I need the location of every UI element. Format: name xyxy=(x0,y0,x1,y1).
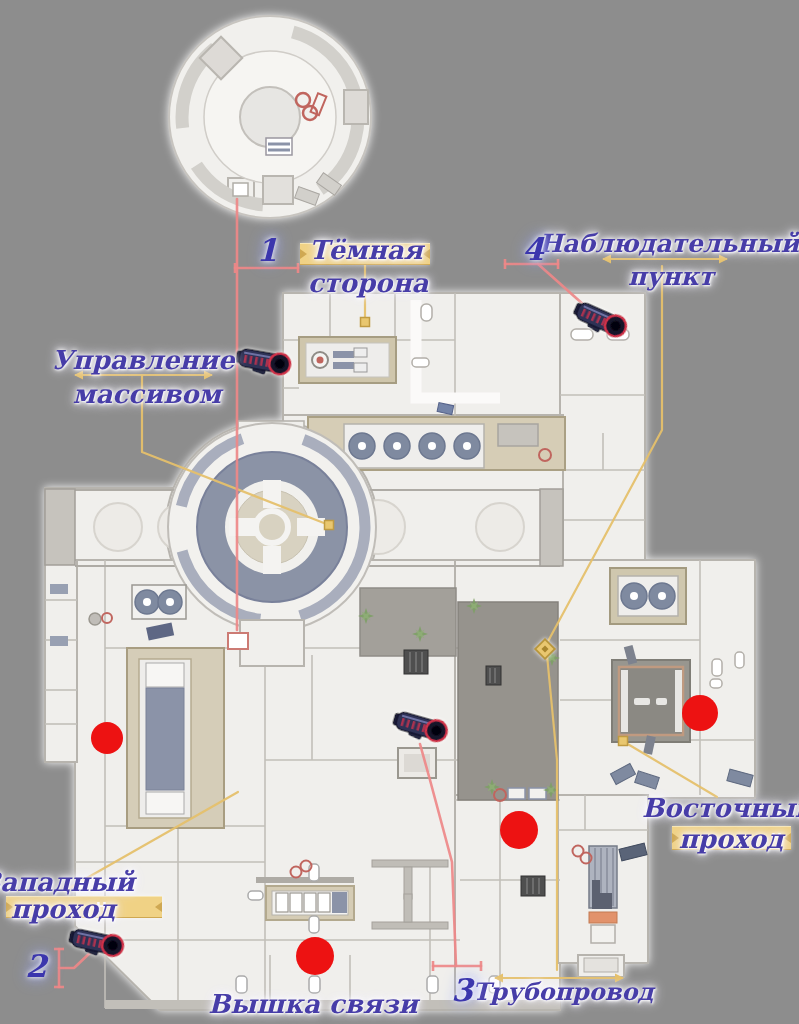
bar-notch-right-icon xyxy=(423,249,430,259)
area-label-west-passage: проход xyxy=(11,894,116,924)
area-label-pipeline: Трубопровод xyxy=(472,977,653,1006)
red-dot-marker xyxy=(500,811,538,849)
red-dot-marker xyxy=(682,695,718,731)
red-dot-marker xyxy=(296,937,334,975)
area-label-dark-side: Тёмная xyxy=(309,235,423,265)
bar-notch-right-icon xyxy=(784,833,791,843)
area-label-observation-point: пункт xyxy=(628,262,714,291)
area-label-east-passage: Восточный xyxy=(642,793,799,823)
area-label-east-passage: проход xyxy=(679,824,784,854)
bar-notch-right-icon xyxy=(155,902,162,912)
area-label-observation-point: Наблюдательный xyxy=(539,229,799,258)
area-label-comm-tower: Вышка связи xyxy=(208,989,418,1019)
number-marker-3: 3 xyxy=(451,972,473,1008)
number-marker-4: 4 xyxy=(522,231,544,267)
area-label-array-control: Управление xyxy=(52,345,235,375)
area-label-dark-side: сторона xyxy=(308,268,429,298)
number-marker-2: 2 xyxy=(25,948,47,984)
area-label-array-control: массивом xyxy=(73,379,221,409)
number-marker-1: 1 xyxy=(256,232,278,268)
label-layer: ТёмнаясторонаНаблюдательныйпунктУправлен… xyxy=(0,0,799,1024)
red-dot-marker xyxy=(91,722,123,754)
facility-map-screenshot: ТёмнаясторонаНаблюдательныйпунктУправлен… xyxy=(0,0,799,1024)
bar-notch-left-icon xyxy=(300,249,307,259)
area-label-west-passage: Западный xyxy=(0,867,135,897)
